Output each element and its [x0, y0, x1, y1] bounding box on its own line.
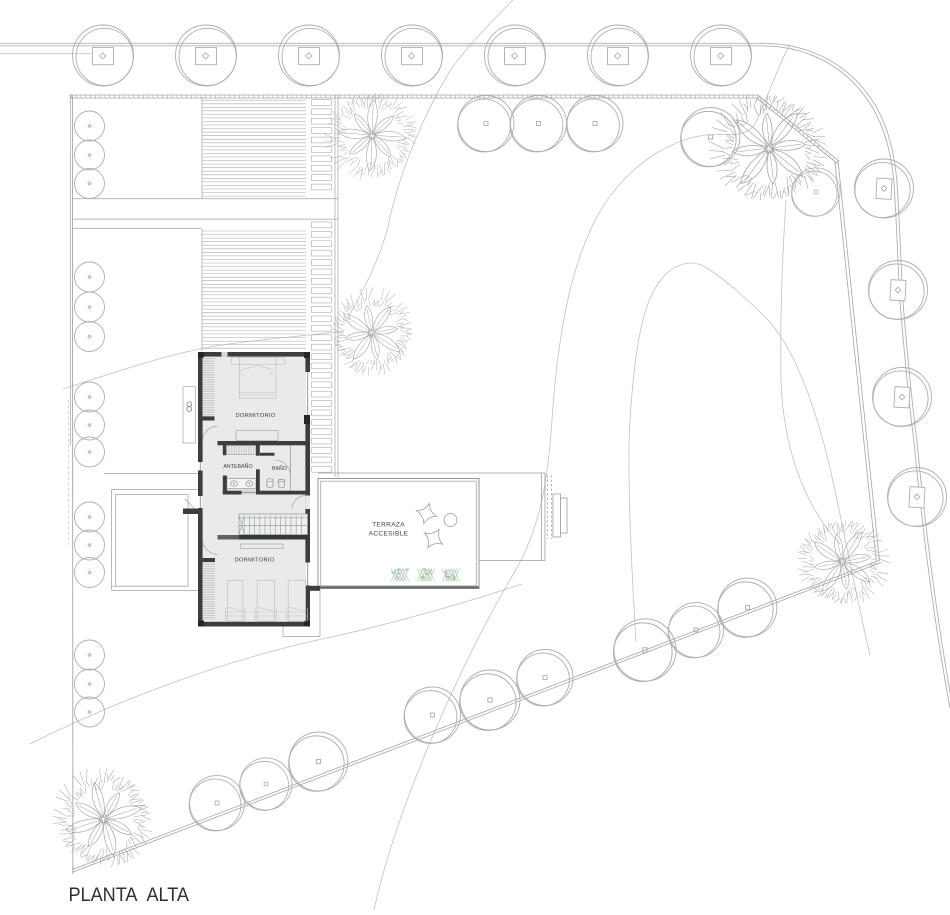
svg-text:DORMITORIO: DORMITORIO — [235, 413, 275, 419]
svg-text:ANTEBAÑO: ANTEBAÑO — [223, 463, 252, 470]
svg-text:ACCESIBLE: ACCESIBLE — [369, 531, 409, 538]
svg-text:PLANTA ALTA: PLANTA ALTA — [69, 884, 190, 906]
svg-text:BAÑO: BAÑO — [272, 465, 287, 472]
svg-text:TERRAZA: TERRAZA — [372, 522, 405, 529]
svg-text:DORMITORIO: DORMITORIO — [234, 558, 274, 564]
